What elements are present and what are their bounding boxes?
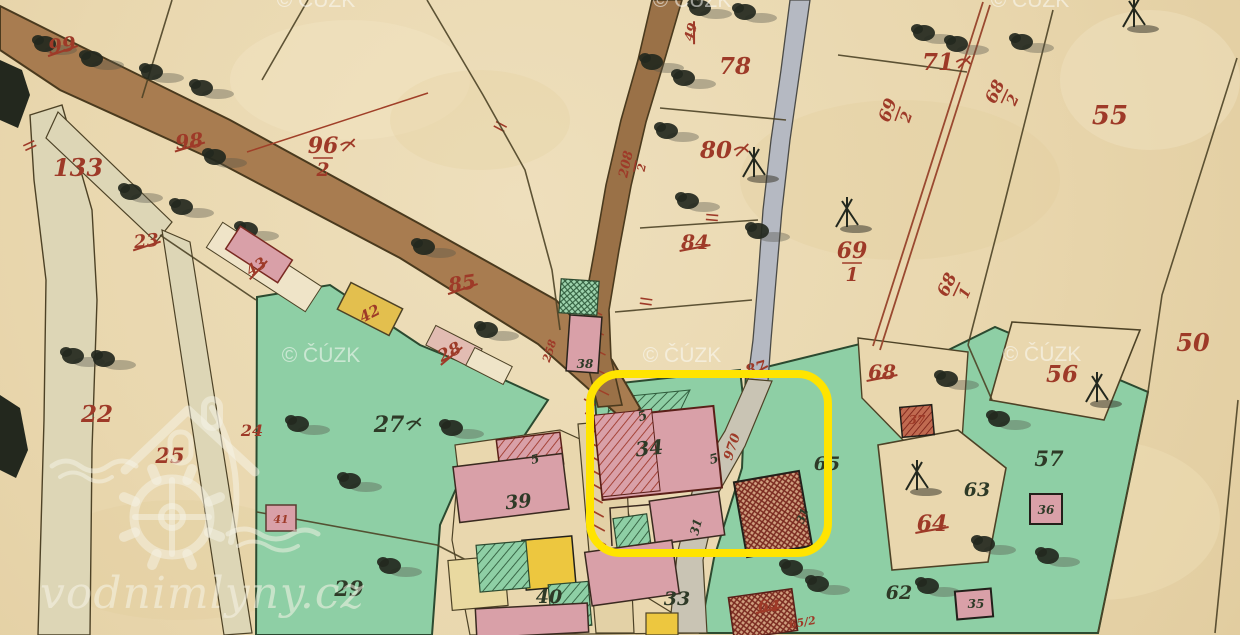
svg-text:1: 1 bbox=[845, 264, 858, 286]
tree-symbol bbox=[671, 69, 716, 89]
building bbox=[476, 541, 530, 592]
svg-text:35: 35 bbox=[968, 597, 985, 611]
svg-text:71: 71 bbox=[922, 49, 954, 76]
parcel-label-41: 41 bbox=[273, 513, 288, 526]
svg-text:64: 64 bbox=[917, 511, 948, 537]
parcel-label-35: 35 bbox=[968, 597, 985, 611]
parcel-label-36: 36 bbox=[1038, 503, 1055, 517]
cuzk-watermark: © ČÚZK bbox=[653, 0, 731, 12]
parcel-label-133: 133 bbox=[53, 153, 103, 182]
tree-symbol bbox=[675, 192, 720, 212]
parcel-label-39: 39 bbox=[504, 490, 533, 515]
svg-text:55: 55 bbox=[1092, 101, 1128, 131]
svg-text:33: 33 bbox=[664, 588, 690, 610]
parcel-label-68: 682 bbox=[981, 77, 1025, 115]
svg-text:2: 2 bbox=[315, 159, 329, 181]
parcel-label-78: 78 bbox=[719, 53, 751, 80]
parcel-label-50: 50 bbox=[1176, 328, 1210, 357]
parcel-label-84: 84 bbox=[680, 230, 711, 254]
parcel-label-38: 38 bbox=[577, 357, 594, 371]
svg-text:36: 36 bbox=[1038, 503, 1055, 517]
parcel-label-68: 681 bbox=[933, 270, 977, 308]
parcel-label-64: 64 bbox=[756, 596, 782, 615]
svg-text:69: 69 bbox=[837, 238, 868, 264]
building bbox=[646, 613, 678, 635]
parcel-label-99: 99 bbox=[45, 31, 79, 59]
svg-text:24: 24 bbox=[240, 421, 263, 440]
boundary-tick bbox=[640, 298, 653, 305]
svg-text:96: 96 bbox=[308, 133, 339, 159]
cuzk-watermark: © ČÚZK bbox=[277, 0, 355, 12]
parcel-label-33: 33 bbox=[664, 588, 690, 610]
tree-symbol bbox=[189, 79, 234, 99]
map-canvas[interactable]: 9913398962234328854278808420828797071556… bbox=[0, 0, 1240, 635]
parcel-label-68: 68 bbox=[867, 360, 898, 384]
tree-symbol bbox=[732, 3, 777, 23]
parcel-label-85: 85 bbox=[445, 269, 479, 297]
tree-symbol bbox=[91, 350, 136, 370]
parcel-label-49: 49 bbox=[682, 19, 702, 44]
parcel-label-63: 63 bbox=[964, 479, 990, 501]
parcel-label-57: 57 bbox=[1034, 446, 1064, 471]
building bbox=[649, 491, 724, 544]
parcel-label-37: 37 bbox=[909, 413, 926, 427]
svg-text:2: 2 bbox=[635, 162, 650, 174]
parcel-label-69: 691 bbox=[837, 238, 868, 286]
svg-text:40: 40 bbox=[536, 586, 562, 608]
parcel-label-64: 64 bbox=[915, 511, 948, 537]
svg-text:34: 34 bbox=[634, 435, 664, 462]
parcel-label-23: 23 bbox=[131, 230, 161, 254]
building bbox=[475, 603, 588, 635]
svg-text:50: 50 bbox=[1176, 328, 1210, 357]
svg-text:49: 49 bbox=[682, 21, 701, 42]
parcel-label-80: 80 bbox=[699, 137, 748, 164]
svg-text:39: 39 bbox=[504, 490, 533, 515]
svg-text:38: 38 bbox=[577, 357, 594, 371]
svg-text:57: 57 bbox=[1034, 446, 1064, 471]
cuzk-watermark: © ČÚZK bbox=[1003, 343, 1081, 366]
cuzk-watermark: © ČÚZK bbox=[282, 344, 360, 367]
svg-text:80: 80 bbox=[699, 137, 732, 164]
svg-text:63: 63 bbox=[964, 479, 990, 501]
svg-text:27: 27 bbox=[373, 412, 405, 438]
svg-text:1: 1 bbox=[955, 285, 975, 301]
parcel-label-22: 22 bbox=[80, 401, 113, 428]
boundary-tick bbox=[706, 214, 718, 220]
svg-text:78: 78 bbox=[719, 53, 751, 80]
brand-watermark: vodnimlyny.cz bbox=[40, 568, 365, 619]
tree-symbol bbox=[654, 122, 699, 142]
parcel-label-34: 34 bbox=[634, 435, 664, 462]
svg-text:41: 41 bbox=[273, 513, 288, 526]
cuzk-watermark: © ČÚZK bbox=[643, 344, 721, 367]
tree-symbol bbox=[169, 198, 214, 218]
parcel-label-98: 98 bbox=[173, 127, 206, 154]
svg-text:133: 133 bbox=[53, 153, 103, 182]
parcel-label-40: 40 bbox=[536, 586, 562, 608]
cuzk-watermark: © ČÚZK bbox=[991, 0, 1069, 12]
map-svg: 9913398962234328854278808420828797071556… bbox=[0, 0, 1240, 635]
svg-text:62: 62 bbox=[886, 582, 912, 604]
parcel-label-62: 62 bbox=[886, 582, 912, 604]
svg-text:37: 37 bbox=[909, 413, 926, 427]
parcel-label-24: 24 bbox=[240, 421, 263, 440]
svg-text:22: 22 bbox=[80, 401, 113, 428]
svg-text:2: 2 bbox=[1003, 92, 1023, 109]
building bbox=[559, 279, 599, 316]
parcel-label-55: 55 bbox=[1092, 101, 1128, 131]
